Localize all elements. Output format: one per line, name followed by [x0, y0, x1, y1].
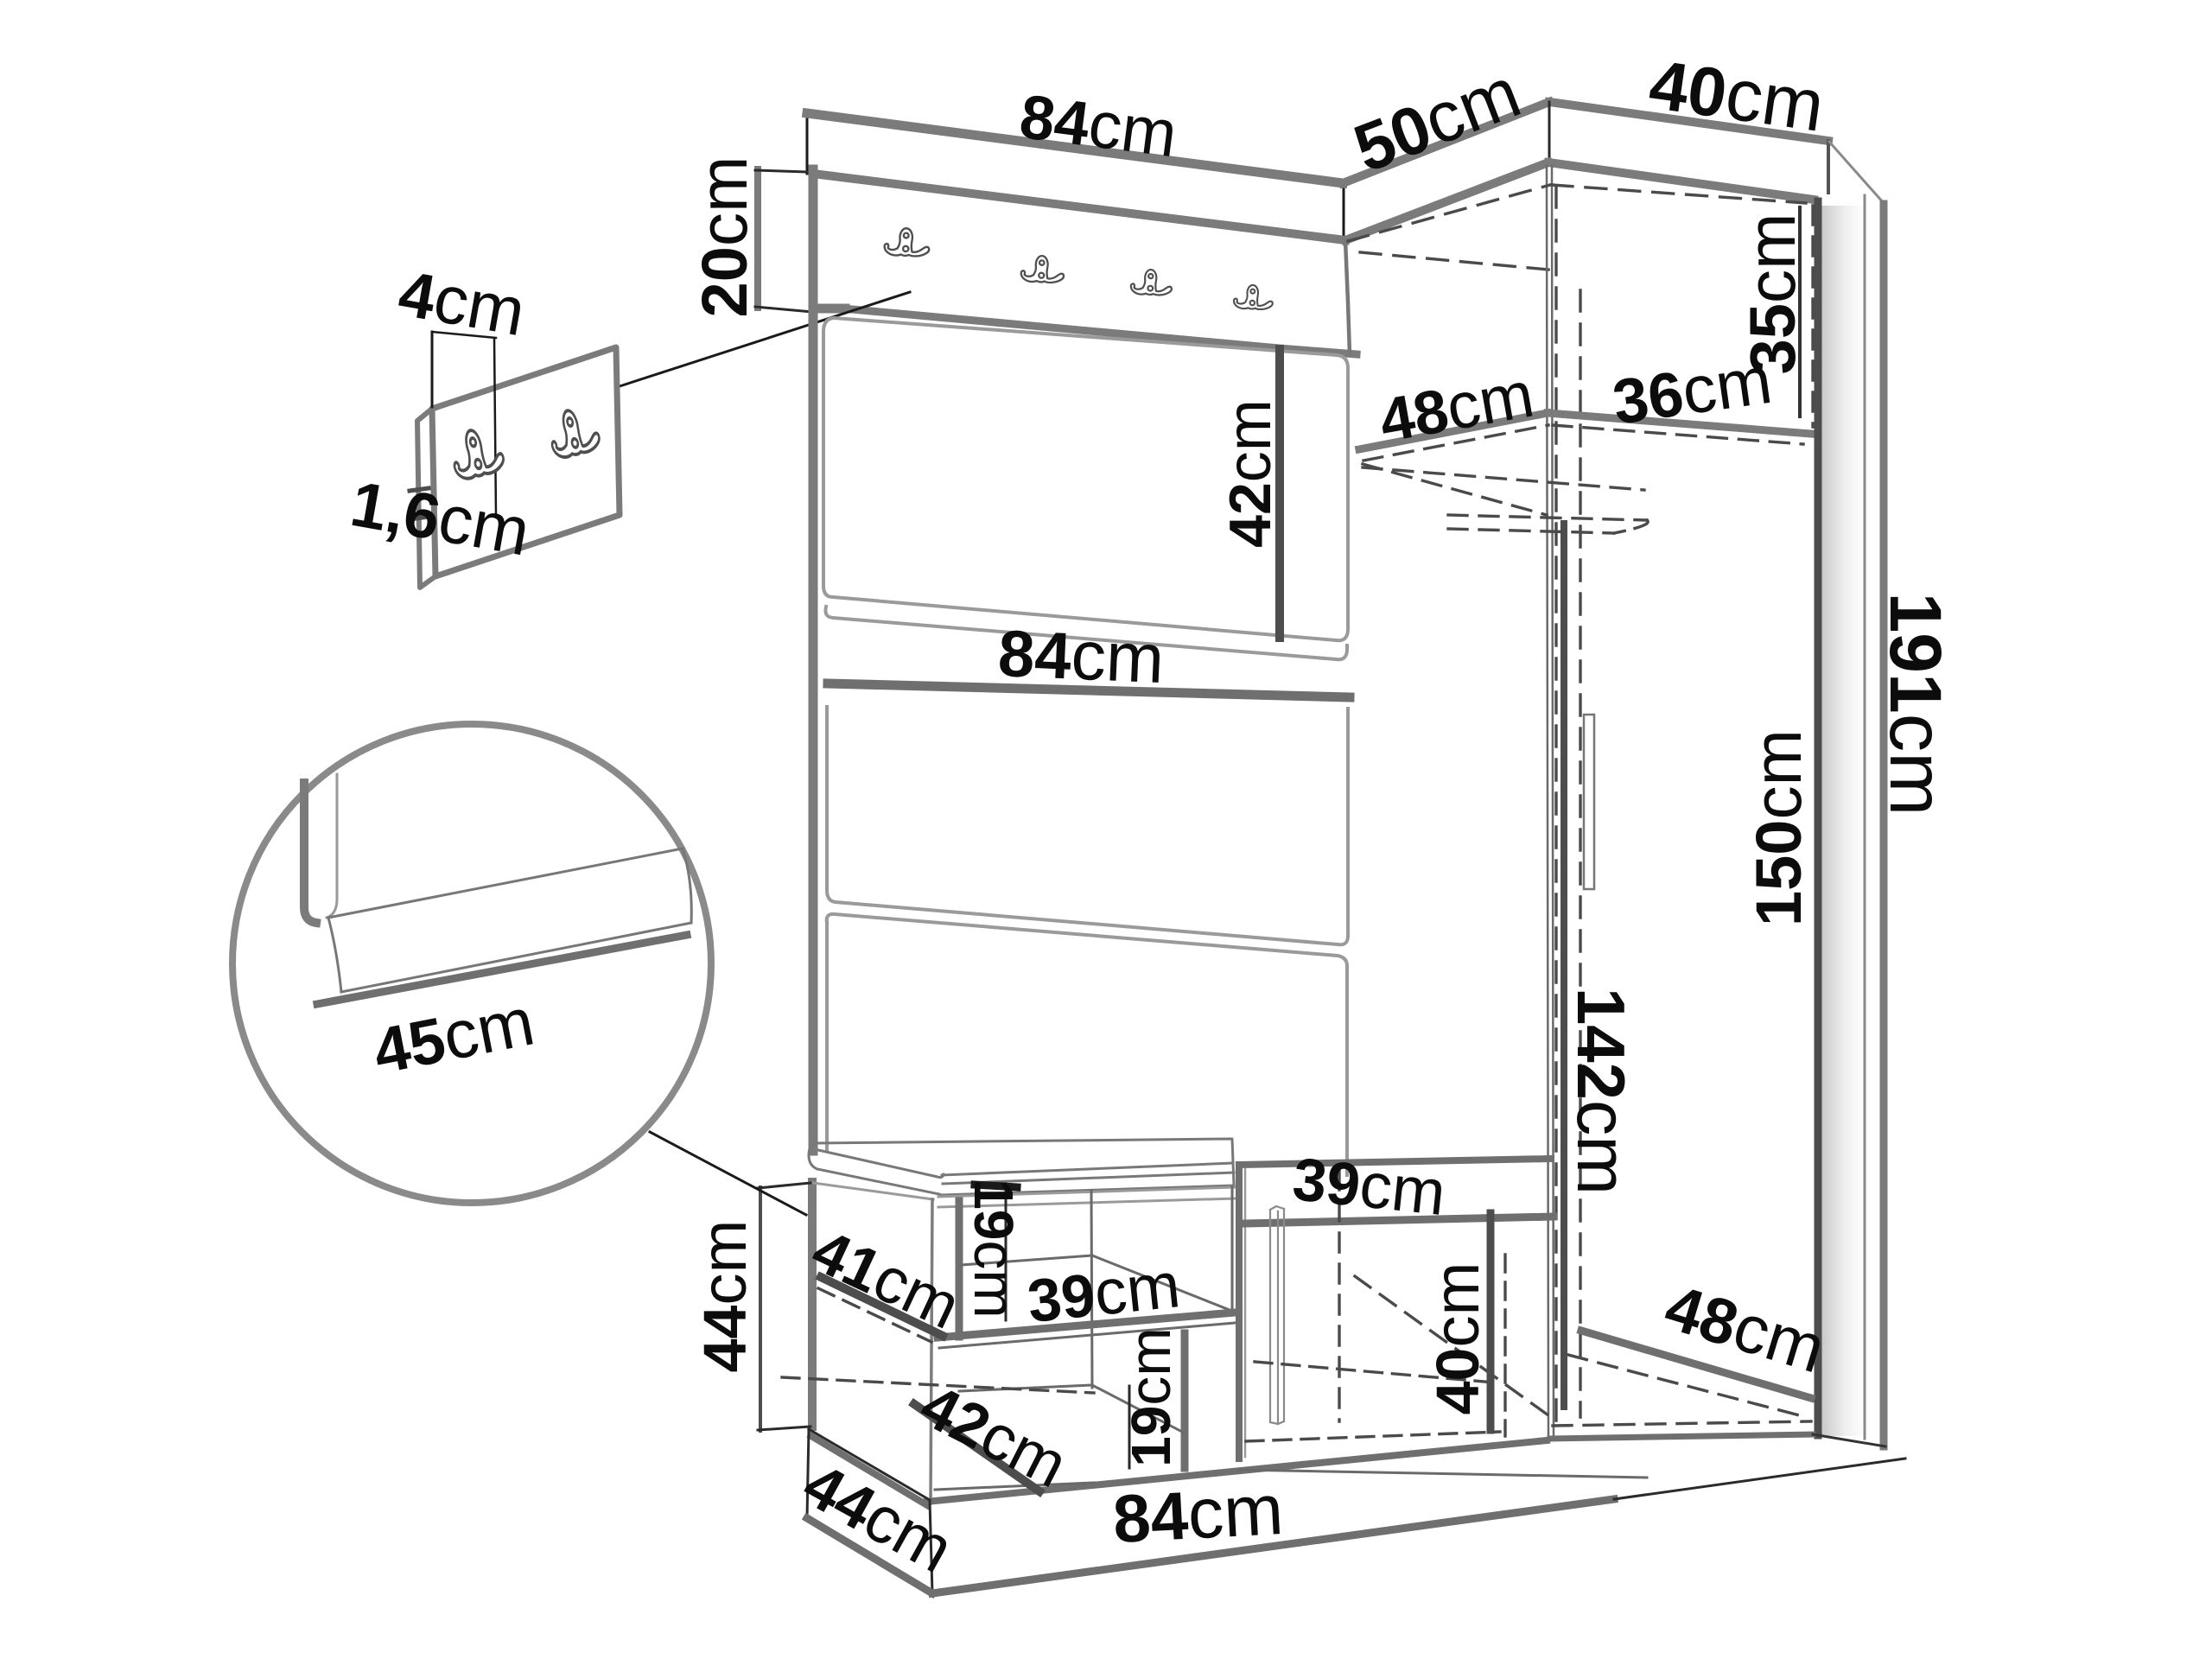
svg-text:84cm: 84cm	[1111, 1469, 1286, 1558]
svg-text:40cm: 40cm	[1421, 1262, 1492, 1415]
svg-text:20cm: 20cm	[685, 156, 761, 318]
svg-text:84cm: 84cm	[996, 613, 1166, 698]
svg-text:19cm: 19cm	[1118, 1327, 1183, 1467]
svg-text:19cm: 19cm	[962, 1179, 1027, 1319]
svg-text:142cm: 142cm	[1562, 988, 1643, 1195]
svg-text:35cm: 35cm	[1733, 213, 1809, 375]
svg-text:44cm: 44cm	[688, 1220, 760, 1373]
svg-text:42cm: 42cm	[1215, 399, 1284, 548]
svg-text:191cm: 191cm	[1874, 593, 1961, 817]
svg-text:150cm: 150cm	[1739, 729, 1815, 926]
